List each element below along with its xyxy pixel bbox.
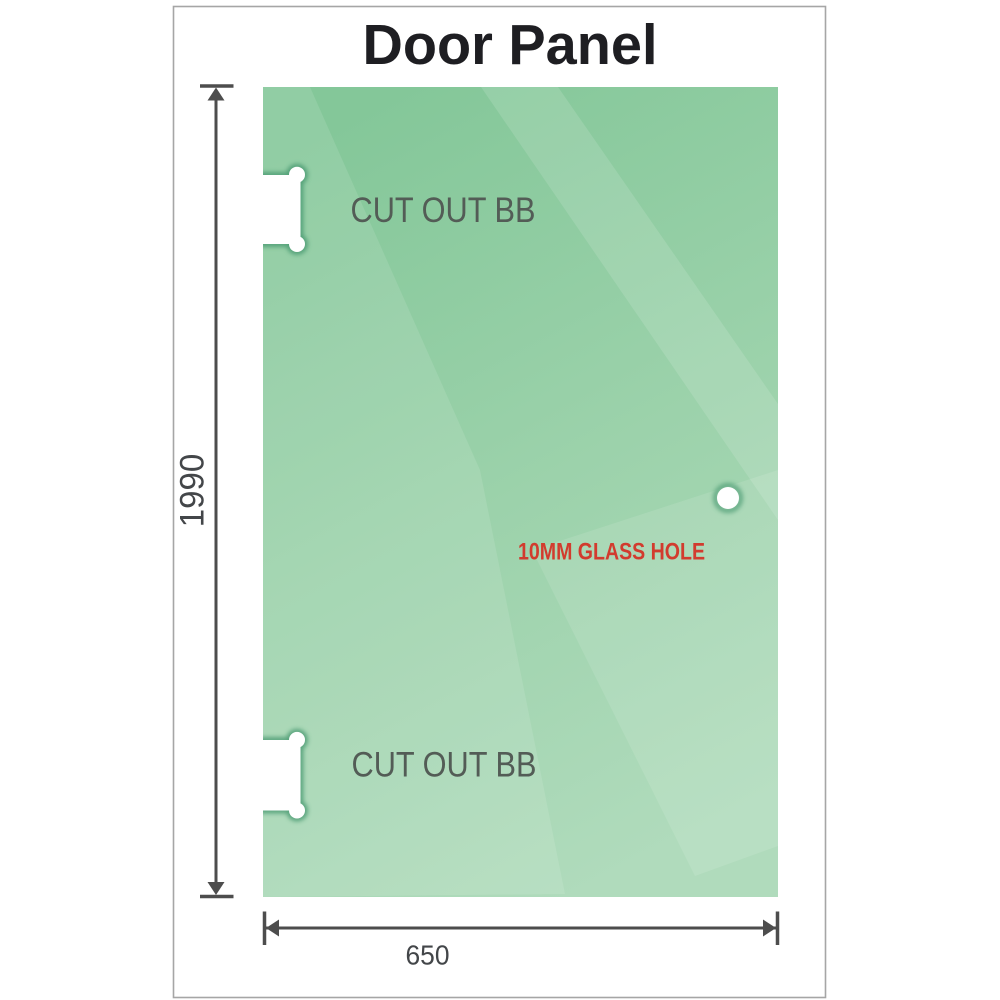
- svg-text:Door Panel: Door Panel: [363, 13, 658, 77]
- svg-text:10MM GLASS HOLE: 10MM GLASS HOLE: [518, 539, 705, 566]
- svg-text:CUT OUT BB: CUT OUT BB: [351, 191, 536, 230]
- svg-text:650: 650: [406, 940, 450, 971]
- svg-text:CUT OUT BB: CUT OUT BB: [352, 746, 537, 785]
- svg-text:1990: 1990: [174, 454, 212, 528]
